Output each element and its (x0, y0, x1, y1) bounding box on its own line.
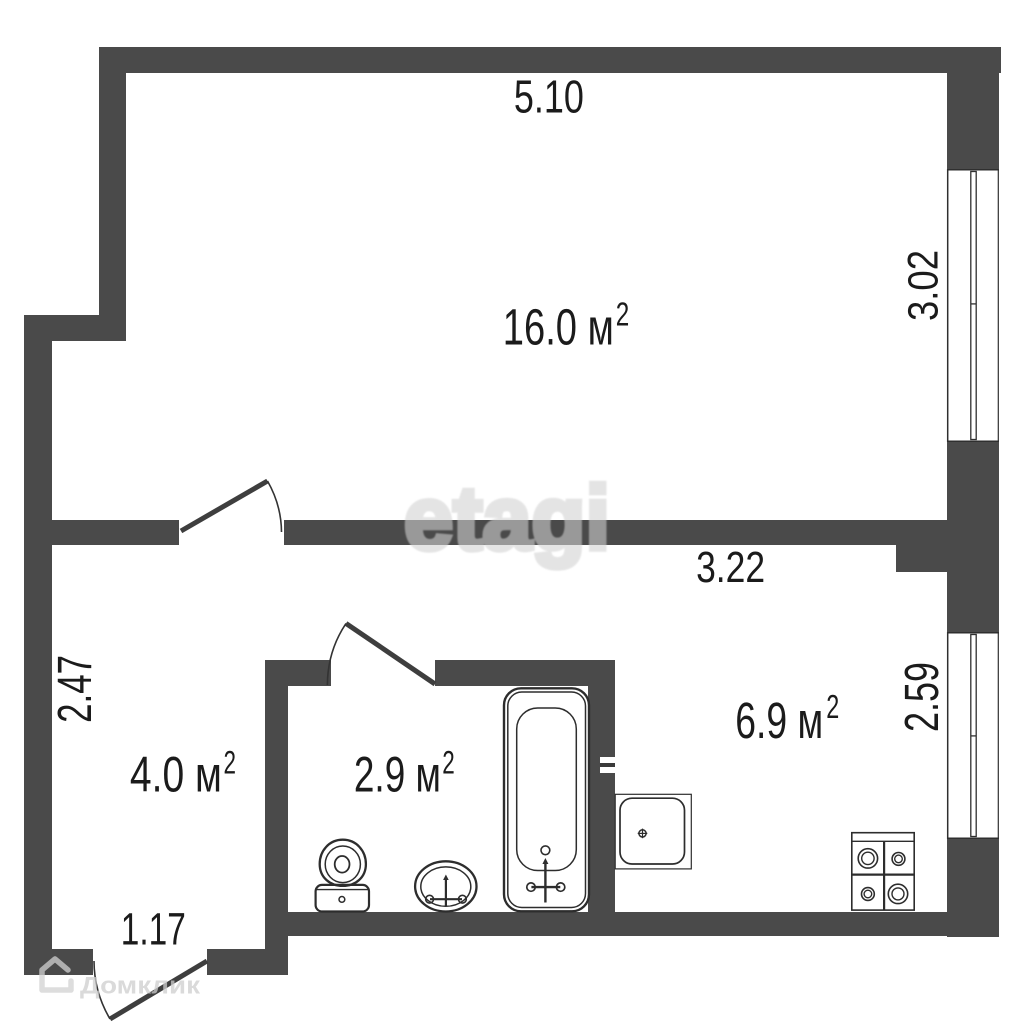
svg-text:16.0 м: 16.0 м (503, 299, 614, 356)
svg-text:3.22: 3.22 (696, 543, 765, 592)
svg-text:2.47: 2.47 (49, 655, 102, 723)
svg-text:2.9 м: 2.9 м (354, 746, 441, 802)
svg-text:2: 2 (616, 296, 630, 333)
svg-text:Домклик: Домклик (80, 973, 201, 1000)
svg-text:4.0 м: 4.0 м (130, 746, 222, 802)
svg-text:etagi: etagi (404, 469, 610, 569)
svg-text:2.59: 2.59 (896, 662, 949, 732)
svg-text:6.9 м: 6.9 м (735, 692, 823, 749)
svg-text:5.10: 5.10 (514, 71, 584, 123)
svg-text:2: 2 (826, 688, 839, 725)
svg-text:1.17: 1.17 (121, 904, 186, 955)
svg-text:2: 2 (224, 745, 237, 781)
svg-text:2: 2 (442, 745, 455, 781)
svg-text:3.02: 3.02 (900, 250, 948, 321)
